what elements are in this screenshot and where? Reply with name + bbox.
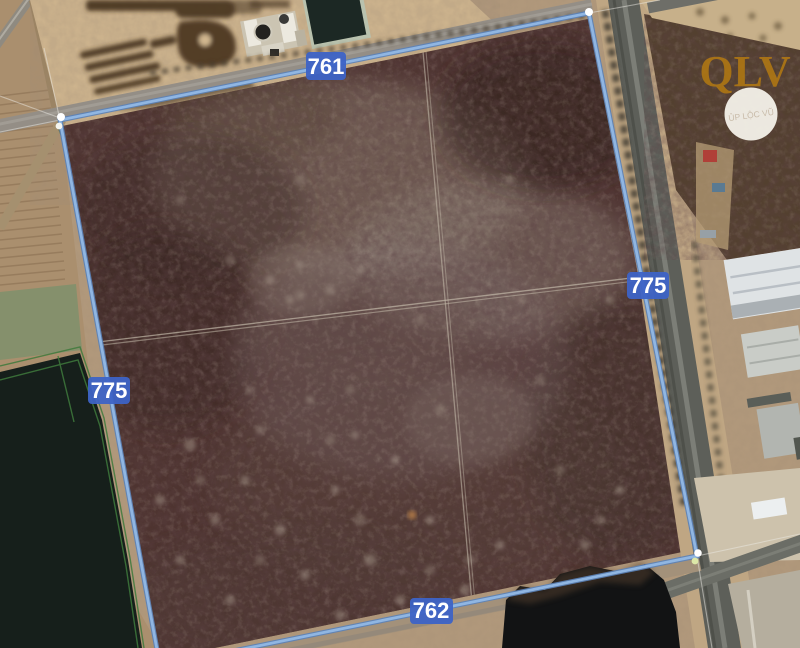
svg-text:775: 775	[630, 273, 667, 298]
svg-text:761: 761	[308, 54, 345, 79]
svg-text:775: 775	[91, 378, 128, 403]
svg-text:762: 762	[413, 598, 450, 623]
